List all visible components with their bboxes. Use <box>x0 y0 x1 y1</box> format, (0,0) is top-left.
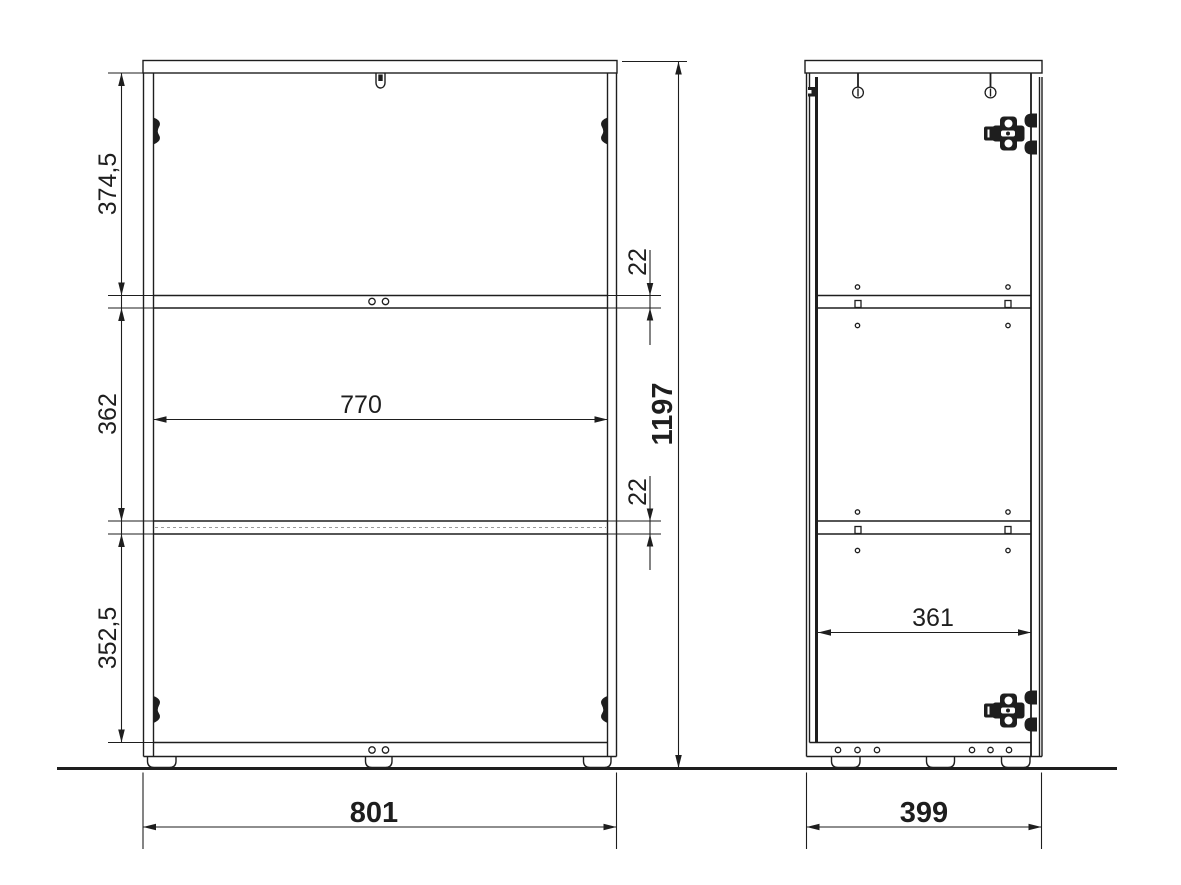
hinge-right-upper <box>601 118 607 145</box>
bottom-front-hole <box>369 747 375 753</box>
dim-upper-shelf-thickness: 22 <box>608 248 662 345</box>
dim-overall-height: 1197 <box>622 62 687 769</box>
dim-label-overall-depth: 399 <box>900 797 948 829</box>
door-hinge-lower <box>984 691 1037 732</box>
dim-label-lower-compartment: 352,5 <box>94 607 122 670</box>
shelf-pin <box>855 527 861 534</box>
cabinet-technical-drawing: 374,5 362 352,5 22 22 770 1197 <box>0 0 1181 885</box>
hinge-left-upper <box>154 118 160 145</box>
front-foot-center <box>366 757 393 768</box>
dim-lower-shelf-thickness: 22 <box>608 476 662 570</box>
side-top-panel <box>805 61 1042 74</box>
dim-overall-width: 801 <box>143 773 617 850</box>
side-foot-center <box>927 757 955 768</box>
dim-label-interior-width: 770 <box>340 391 382 419</box>
dim-label-overall-height: 1197 <box>647 383 679 446</box>
side-foot-front <box>1002 757 1031 768</box>
cam-bolt-right <box>985 73 996 98</box>
shelf-pin <box>1005 301 1011 308</box>
front-top-panel <box>143 61 617 74</box>
dim-left-stack: 374,5 362 352,5 <box>94 73 155 743</box>
dim-label-interior-depth: 361 <box>912 604 954 632</box>
cam-bolt-left <box>853 73 864 98</box>
dim-interior-depth: 361 <box>818 604 1031 636</box>
side-shelf-lower <box>818 510 1031 553</box>
door-hinge-upper <box>984 114 1037 155</box>
dim-label-upper-compartment: 374,5 <box>94 153 122 216</box>
keyhole-hanger <box>376 73 385 88</box>
dim-interior-width: 770 <box>154 391 608 423</box>
drawing-canvas: 374,5 362 352,5 22 22 770 1197 <box>0 0 1181 885</box>
side-foot-back <box>832 757 861 768</box>
front-foot-right <box>584 757 612 768</box>
hinge-right-lower <box>601 696 607 723</box>
front-shelf-lower <box>154 521 608 534</box>
dim-label-upper-shelf: 22 <box>624 248 652 276</box>
shelf-pin <box>855 301 861 308</box>
side-bottom-holes <box>835 747 1011 752</box>
front-foot-left <box>148 757 177 768</box>
dim-label-middle-compartment: 362 <box>94 393 122 435</box>
side-shelf-upper <box>818 285 1031 328</box>
dim-overall-depth: 399 <box>807 773 1042 850</box>
dim-label-lower-shelf: 22 <box>624 478 652 506</box>
front-shelf-upper <box>154 296 608 309</box>
shelf-pin <box>1005 527 1011 534</box>
dim-label-overall-width: 801 <box>350 797 398 829</box>
shelf-front-hole <box>382 298 388 304</box>
side-view <box>805 61 1042 768</box>
bottom-front-hole <box>382 747 388 753</box>
back-panel-bracket <box>808 87 815 97</box>
shelf-front-hole <box>369 298 375 304</box>
hinge-left-lower <box>154 696 160 723</box>
